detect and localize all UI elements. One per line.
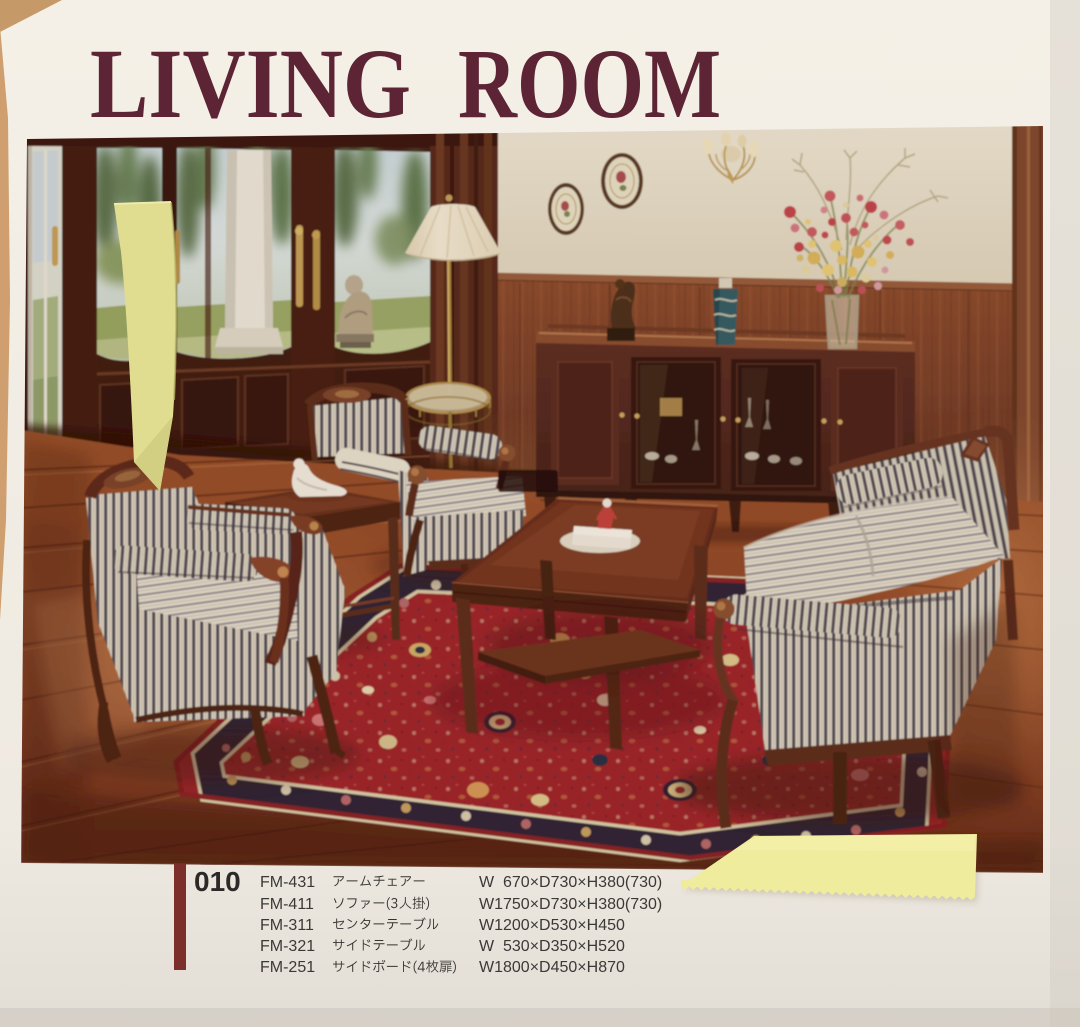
svg-text:W1750×D730×H380(730): W1750×D730×H380(730) <box>479 896 662 913</box>
svg-text:FM-321: FM-321 <box>260 938 315 955</box>
svg-text:W 670×D730×H380(730): W 670×D730×H380(730) <box>479 874 662 891</box>
svg-text:010: 010 <box>194 866 241 897</box>
svg-text:W1200×D530×H450: W1200×D530×H450 <box>479 917 625 934</box>
svg-text:W1800×D450×H870: W1800×D450×H870 <box>479 959 625 976</box>
svg-text:FM-311: FM-311 <box>260 917 314 934</box>
svg-text:FM-431: FM-431 <box>260 874 315 891</box>
svg-text:FM-251: FM-251 <box>260 959 315 976</box>
svg-text:ROOM: ROOM <box>458 28 721 139</box>
svg-text:W 530×D350×H520: W 530×D350×H520 <box>479 938 625 955</box>
svg-text:LIVING: LIVING <box>90 28 411 139</box>
svg-text:FM-411: FM-411 <box>260 896 314 913</box>
